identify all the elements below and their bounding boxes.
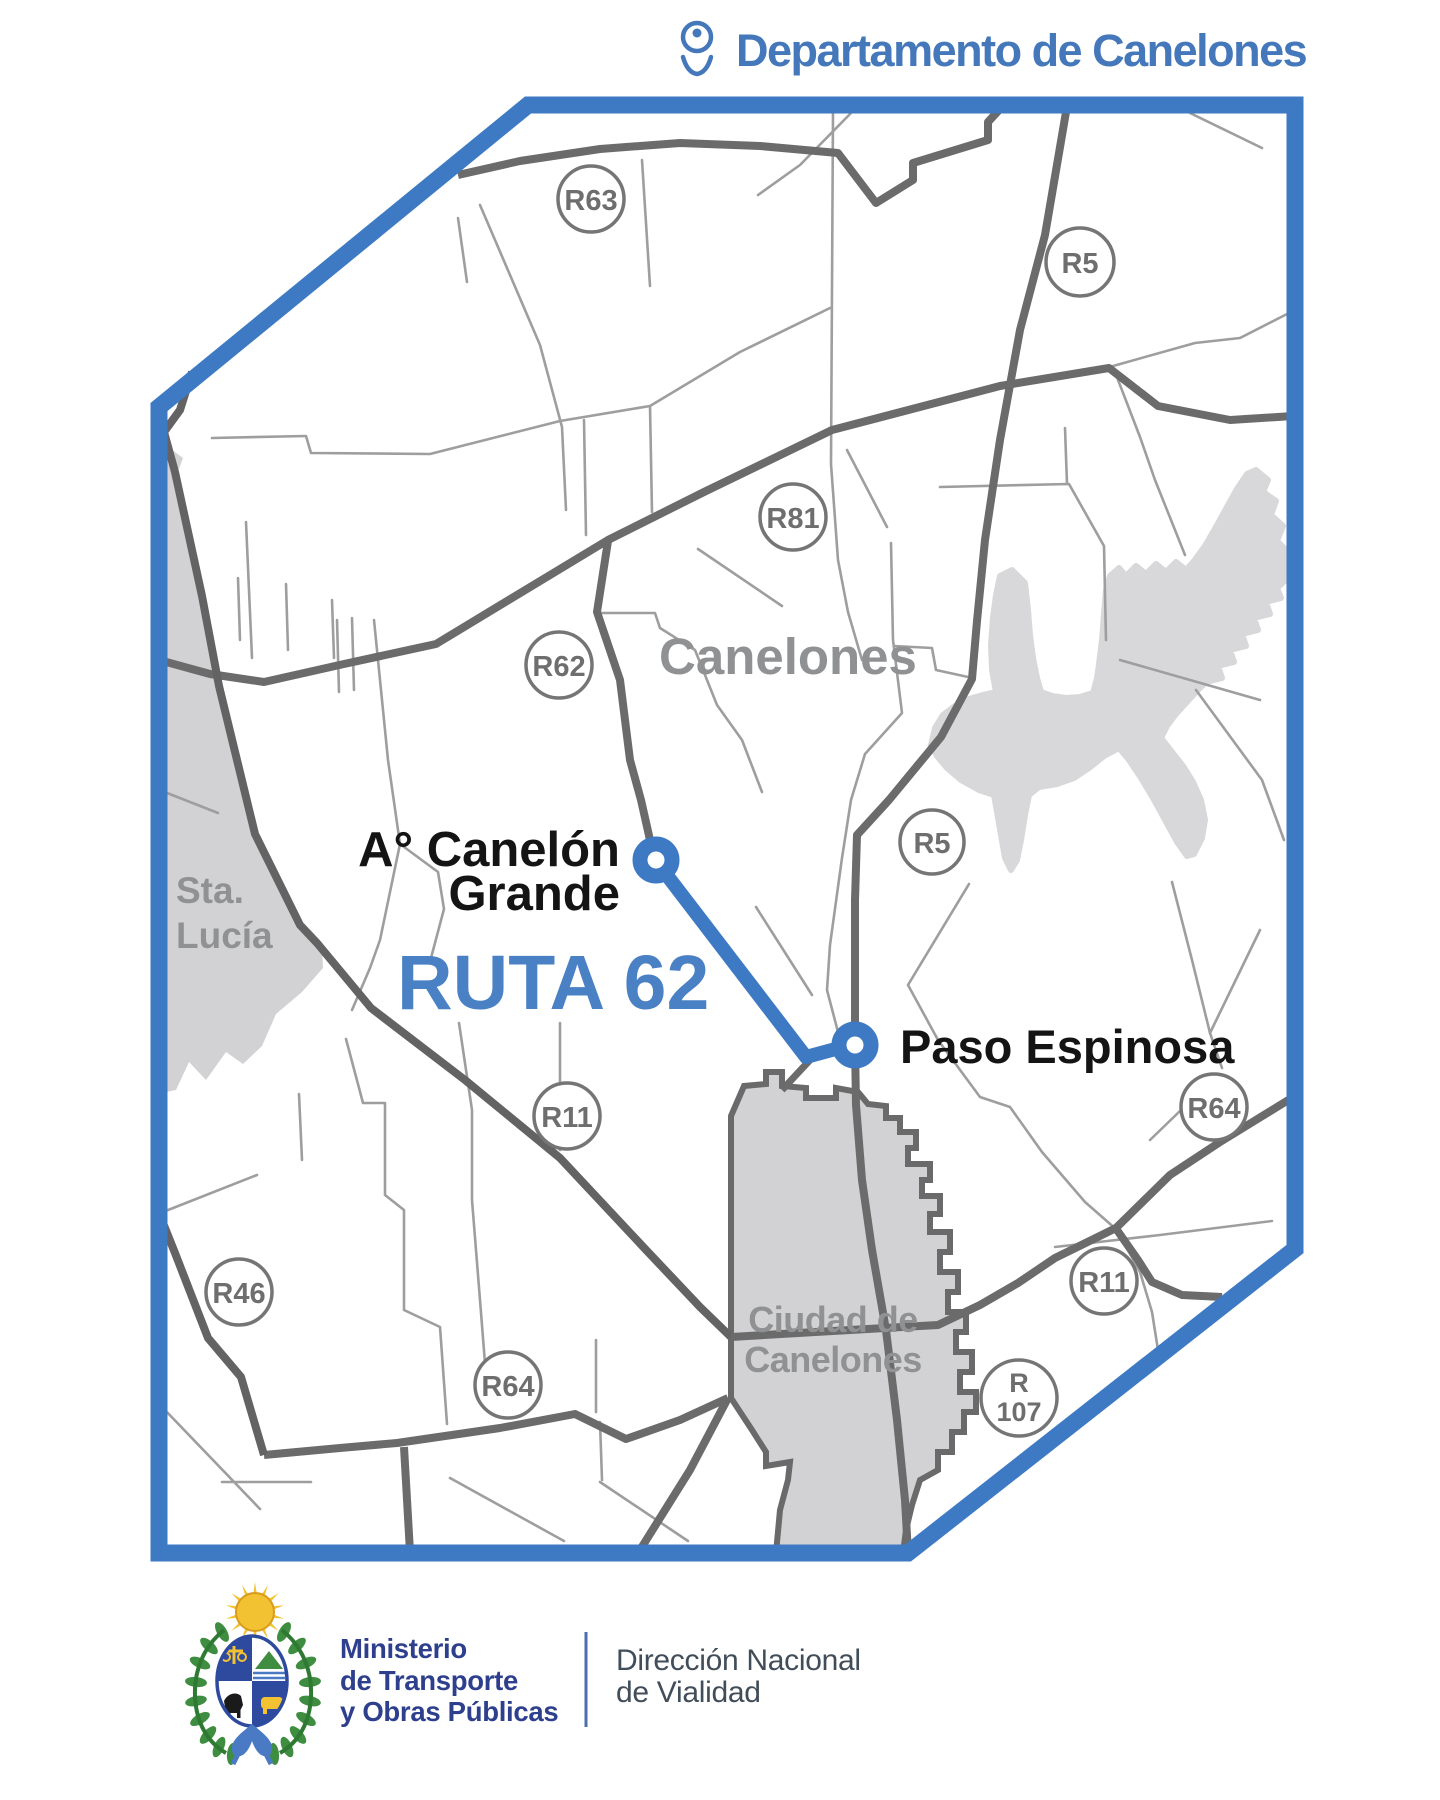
svg-text:R63: R63: [564, 185, 617, 217]
svg-text:Ministerio: Ministerio: [340, 1633, 467, 1664]
svg-text:Departamento de Canelones: Departamento de Canelones: [736, 25, 1307, 76]
svg-text:Canelones: Canelones: [659, 628, 917, 685]
svg-text:y Obras Públicas: y Obras Públicas: [340, 1696, 558, 1727]
svg-text:R46: R46: [212, 1278, 265, 1310]
svg-text:R5: R5: [913, 828, 950, 860]
svg-text:Grande: Grande: [448, 867, 620, 921]
svg-text:R5: R5: [1061, 248, 1098, 280]
svg-text:Ciudad de: Ciudad de: [748, 1299, 918, 1340]
svg-text:107: 107: [996, 1397, 1041, 1427]
svg-text:de Transporte: de Transporte: [340, 1665, 518, 1696]
svg-text:Sta.: Sta.: [176, 870, 244, 911]
svg-text:R11: R11: [541, 1102, 593, 1134]
svg-text:R: R: [1009, 1368, 1029, 1398]
svg-text:de Vialidad: de Vialidad: [616, 1676, 761, 1709]
svg-text:R64: R64: [481, 1371, 534, 1403]
svg-text:R64: R64: [1187, 1093, 1240, 1125]
svg-text:R11: R11: [1078, 1267, 1130, 1299]
svg-text:Lucía: Lucía: [176, 915, 273, 956]
svg-text:Canelones: Canelones: [744, 1339, 922, 1380]
svg-text:R81: R81: [766, 503, 819, 535]
svg-text:Paso Espinosa: Paso Espinosa: [900, 1020, 1235, 1073]
svg-text:R62: R62: [532, 651, 585, 683]
svg-text:RUTA 62: RUTA 62: [397, 940, 709, 1026]
svg-text:Dirección Nacional: Dirección Nacional: [616, 1644, 861, 1677]
